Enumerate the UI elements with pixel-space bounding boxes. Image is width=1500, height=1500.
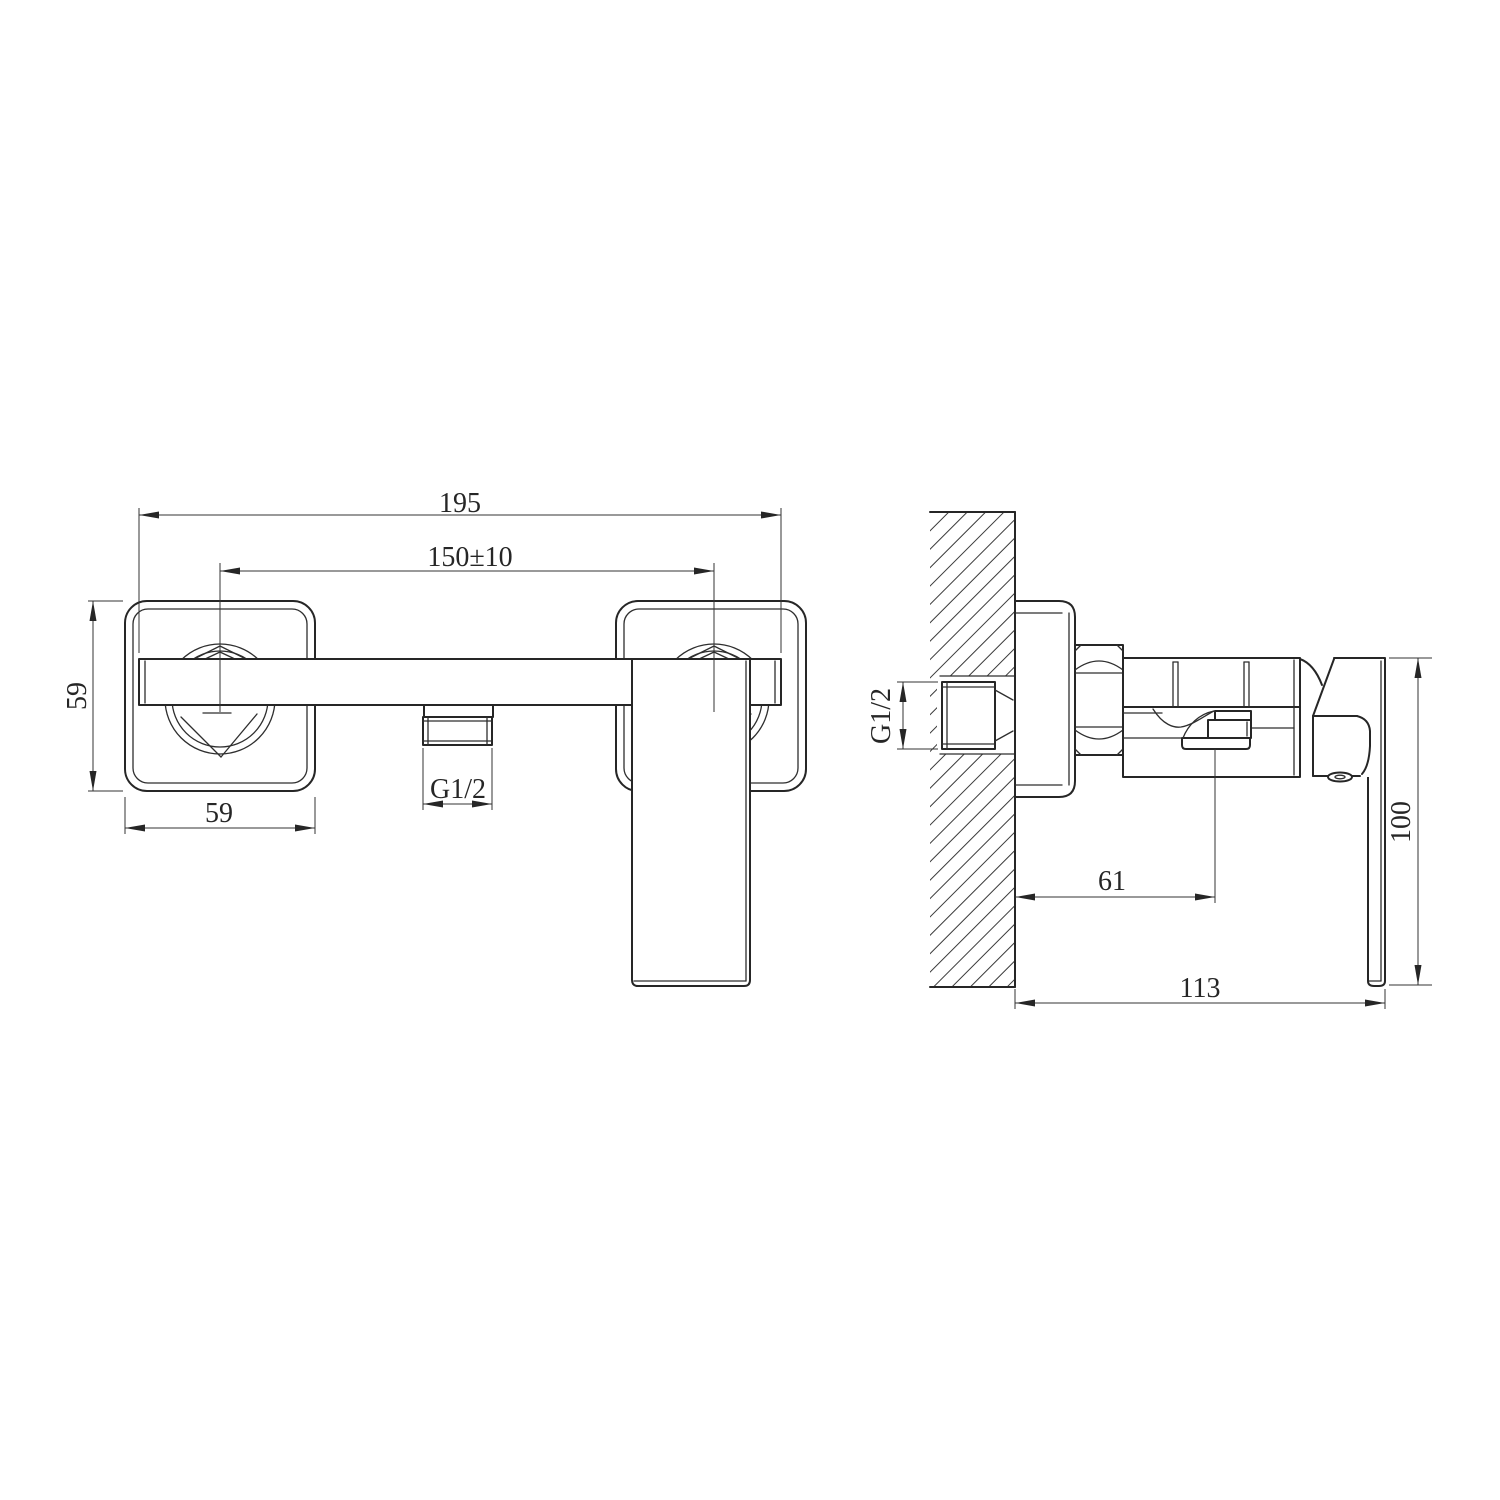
dim-label-wall-to-center: 61 — [1098, 866, 1126, 897]
valve-body-side — [1123, 658, 1300, 777]
dimension-wall-to-handle: 113 — [1015, 973, 1385, 1009]
set-screw-hole — [1328, 773, 1352, 782]
escutcheon-side — [1015, 601, 1075, 797]
hex-nut — [1075, 645, 1123, 755]
dim-label-wall-to-handle: 113 — [1180, 973, 1221, 1004]
dim-label-handle-length: 100 — [1386, 801, 1417, 843]
faucet-technical-drawing: 195 150±10 59 59 — [0, 0, 1500, 1500]
dimension-handle-length: 100 — [1386, 658, 1432, 985]
dimension-outlet-thread: G1/2 — [423, 748, 492, 810]
dim-label-outlet-thread: G1/2 — [430, 774, 486, 805]
front-view: 195 150±10 59 59 — [62, 488, 806, 986]
handle-front — [632, 659, 750, 986]
dimension-inlet-thread: G1/2 — [866, 682, 938, 749]
dimension-flange-width: 59 — [125, 797, 315, 834]
technical-drawing-page: 195 150±10 59 59 — [0, 0, 1500, 1500]
handle-side — [1300, 658, 1385, 986]
dim-label-flange-height: 59 — [62, 682, 93, 710]
dim-label-flange-width: 59 — [205, 798, 233, 829]
side-view: G1/2 61 100 113 — [866, 512, 1432, 1009]
dimension-flange-height: 59 — [62, 601, 123, 791]
dim-label-overall-width: 195 — [439, 488, 481, 519]
dim-label-inlet-thread: G1/2 — [866, 688, 897, 744]
outlet-nipple — [423, 705, 493, 745]
dim-label-hole-centers: 150±10 — [427, 542, 512, 573]
inlet-fitting — [937, 676, 1015, 754]
